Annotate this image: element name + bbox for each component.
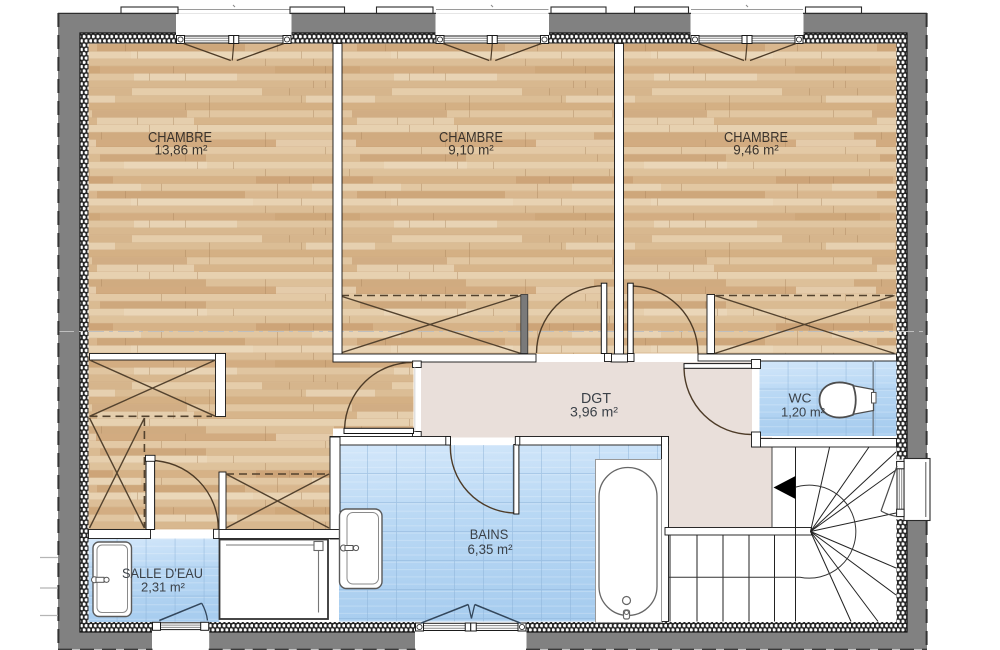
svg-text:6,35 m²: 6,35 m² [468,542,514,557]
svg-text:3,96 m²: 3,96 m² [570,405,619,420]
svg-text:2,31 m²: 2,31 m² [141,580,186,595]
svg-text:BAINS: BAINS [470,527,509,542]
svg-text:13,86 m²: 13,86 m² [155,142,209,157]
svg-text:1,20 m²: 1,20 m² [781,404,826,419]
svg-text:9,46 m²: 9,46 m² [733,142,779,157]
svg-text:9,10 m²: 9,10 m² [448,142,494,157]
